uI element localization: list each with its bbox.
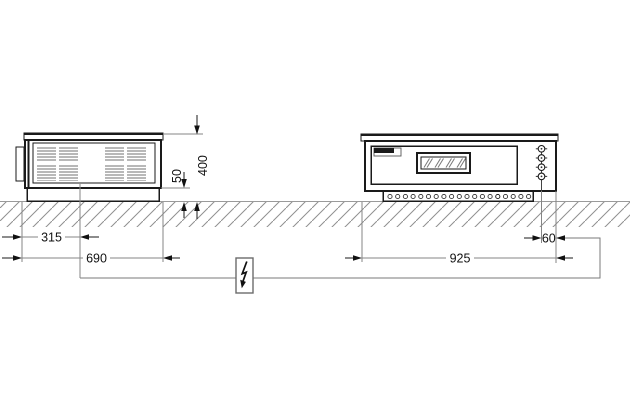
dimension-925: 925 — [345, 252, 573, 266]
dimension-690: 690 — [2, 252, 180, 266]
dim-arrow — [13, 234, 22, 240]
dimension-60: 60 — [524, 232, 565, 246]
vent-slot — [105, 165, 124, 181]
vent-hole — [450, 194, 454, 198]
side-handle — [16, 147, 24, 181]
vent-hole — [519, 194, 523, 198]
dim-label-connection-offset-right: 60 — [542, 232, 556, 246]
vent-hole — [496, 194, 500, 198]
dim-label-total-height: 400 — [196, 155, 210, 176]
dim-arrow — [556, 255, 565, 261]
vent-hole — [396, 194, 400, 198]
dim-label-connection-offset-left: 315 — [41, 231, 62, 245]
side-plinth — [27, 188, 159, 201]
technical-drawing-page: 315 690 925 60 50 — [0, 0, 630, 420]
dim-label-width: 925 — [450, 252, 471, 266]
vent-hole — [411, 194, 415, 198]
vent-hole — [403, 194, 407, 198]
electrical-connection-route — [80, 238, 600, 293]
vent-slot — [127, 165, 146, 181]
dim-arrow — [194, 126, 200, 135]
vent-hole — [480, 194, 484, 198]
electrical-connection-symbol — [236, 258, 253, 293]
vent-hole — [442, 194, 446, 198]
vent-hole — [419, 194, 423, 198]
vent-hole — [426, 194, 430, 198]
vent-hole — [511, 194, 515, 198]
dim-arrow — [163, 255, 172, 261]
dimension-315: 315 — [2, 231, 99, 245]
dim-arrow — [353, 255, 362, 261]
vent-slot — [59, 165, 78, 181]
ground-hatch-band — [0, 202, 630, 227]
front-view — [361, 134, 558, 201]
vent-slot — [59, 146, 78, 162]
viewing-window — [417, 153, 470, 173]
vent-hole — [434, 194, 438, 198]
vent-slot — [37, 165, 56, 181]
vent-hole — [527, 194, 531, 198]
dim-arrow — [533, 235, 542, 241]
vent-hole — [457, 194, 461, 198]
dim-arrow — [556, 235, 565, 241]
vent-hole — [465, 194, 469, 198]
vent-hole — [388, 194, 392, 198]
dim-label-depth: 690 — [86, 252, 107, 266]
side-view — [16, 133, 163, 201]
ground — [0, 202, 630, 228]
vent-slot — [37, 146, 56, 162]
dim-label-base-height: 50 — [170, 169, 184, 183]
vent-hole — [488, 194, 492, 198]
dim-arrow — [13, 255, 22, 261]
installation-diagram: 315 690 925 60 50 — [0, 0, 630, 420]
vent-hole — [473, 194, 477, 198]
vent-hole — [503, 194, 507, 198]
vent-slot — [105, 146, 124, 162]
brand-badge — [374, 148, 401, 156]
vent-slot — [127, 146, 146, 162]
dim-arrow — [80, 234, 89, 240]
